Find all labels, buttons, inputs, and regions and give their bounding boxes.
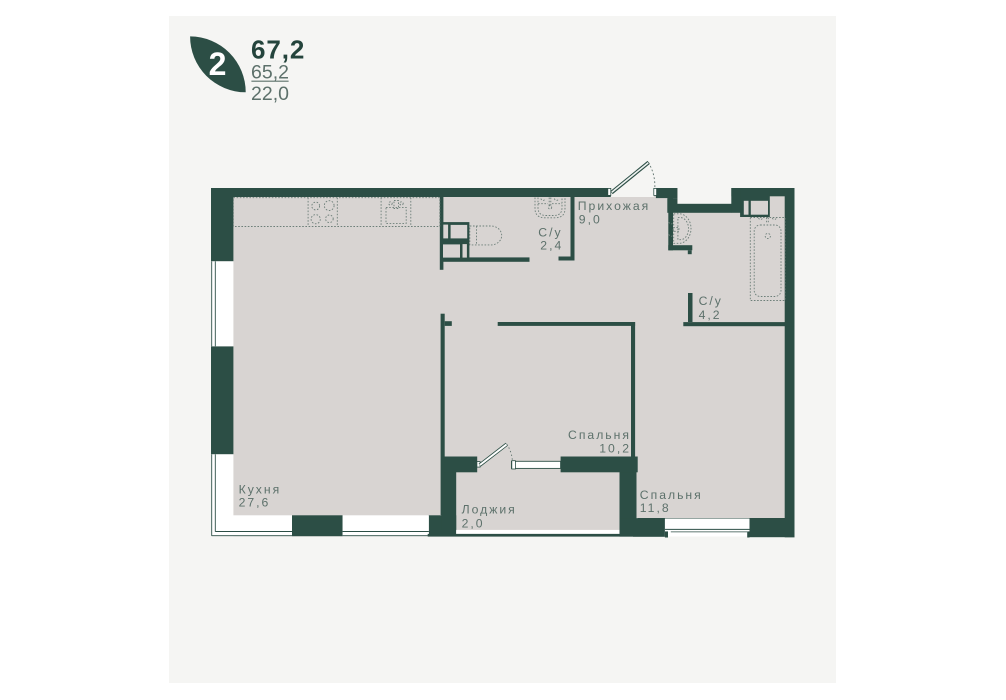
svg-text:Кухня: Кухня [239,482,282,496]
svg-text:9,0: 9,0 [579,212,602,226]
svg-text:67,2: 67,2 [251,35,305,65]
svg-text:С/у: С/у [699,294,723,308]
svg-text:27,6: 27,6 [239,496,271,510]
svg-text:11,8: 11,8 [640,501,671,515]
svg-text:10,2: 10,2 [599,442,631,456]
svg-text:65,2: 65,2 [251,62,289,84]
svg-text:4,2: 4,2 [699,308,722,322]
svg-text:С/у: С/у [538,225,562,239]
svg-text:22,0: 22,0 [251,83,289,105]
svg-text:2,4: 2,4 [540,238,563,252]
svg-text:2: 2 [209,46,227,82]
svg-text:Спальня: Спальня [568,428,631,442]
svg-text:Спальня: Спальня [640,488,703,502]
svg-text:Лоджия: Лоджия [462,503,517,517]
svg-text:2,0: 2,0 [462,517,485,531]
svg-text:Прихожая: Прихожая [578,199,650,213]
